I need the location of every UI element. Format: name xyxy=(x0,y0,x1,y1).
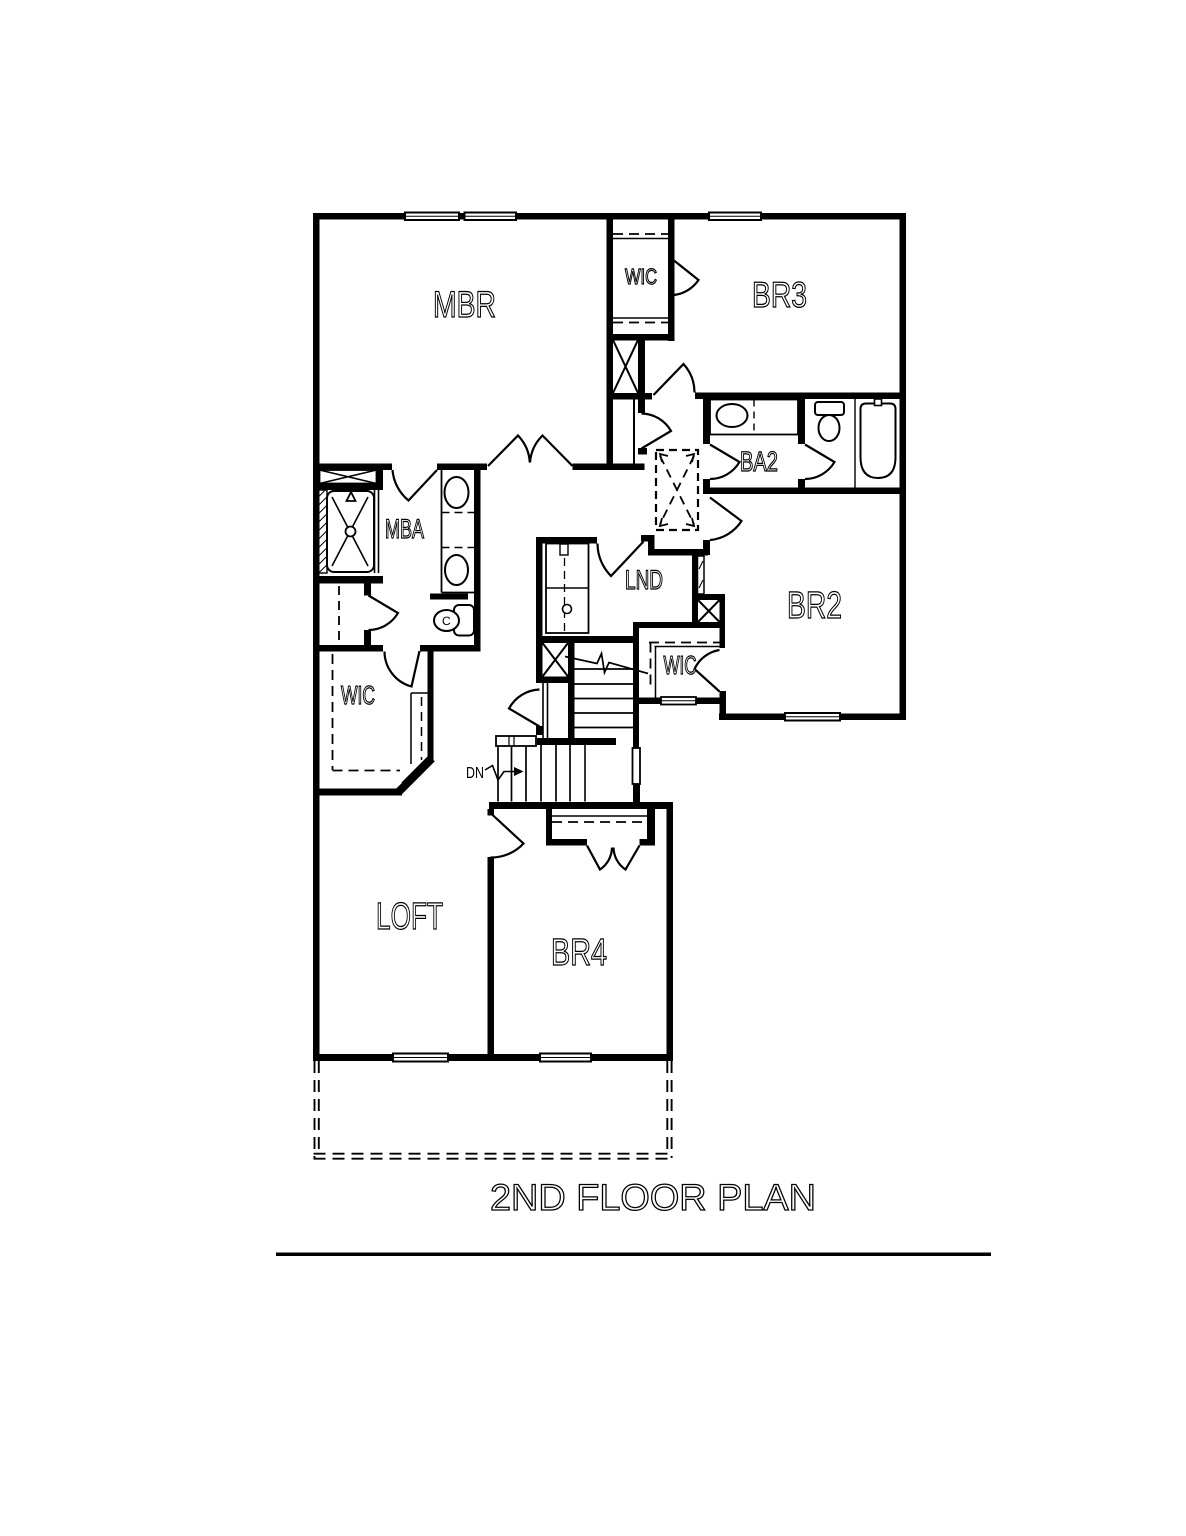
svg-text:BR3: BR3 xyxy=(752,274,807,315)
svg-text:WIC: WIC xyxy=(664,650,697,680)
svg-text:LOFT: LOFT xyxy=(376,896,443,938)
svg-text:WIC: WIC xyxy=(625,264,657,289)
svg-text:2ND FLOOR PLAN: 2ND FLOOR PLAN xyxy=(490,1177,816,1218)
svg-text:C: C xyxy=(442,614,451,628)
svg-text:LND: LND xyxy=(625,565,663,595)
svg-text:WIC: WIC xyxy=(341,680,375,710)
svg-text:BA2: BA2 xyxy=(740,446,778,477)
svg-text:BR4: BR4 xyxy=(551,932,607,974)
svg-text:MBR: MBR xyxy=(433,284,496,325)
svg-text:BR2: BR2 xyxy=(787,585,842,627)
svg-text:DN: DN xyxy=(466,765,484,782)
svg-text:MBA: MBA xyxy=(385,514,424,544)
